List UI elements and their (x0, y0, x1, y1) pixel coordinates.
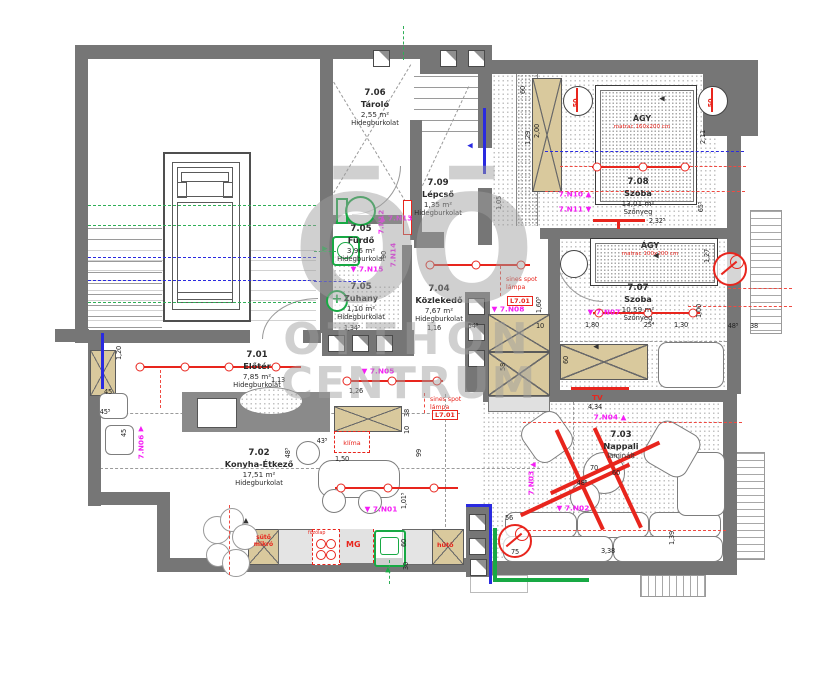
dimension-label: 25⁴ (644, 321, 654, 329)
bed-title: ÁGY (597, 114, 687, 124)
room-floor: Hidegburkolat (406, 315, 472, 324)
dimension-label: 10 (536, 322, 544, 330)
track-light-line1: sines spot (430, 396, 461, 404)
dimension-label: 43⁵ (317, 437, 327, 445)
room-id: 7.05 (328, 282, 394, 293)
electric-line (592, 166, 690, 168)
dimension-label: 4,34 (588, 403, 602, 411)
window-icon (470, 559, 487, 576)
bed-subtitle: matrac 160x200 cm (597, 124, 687, 131)
window-icon (469, 538, 486, 555)
dimension-label: 1,16 (427, 324, 441, 332)
junction-icon (433, 377, 442, 386)
annotation-label: ▼ 7.N02 (557, 504, 590, 513)
room-floor: Hidegburkolat (220, 479, 298, 488)
window-marking-blue (101, 333, 104, 389)
dimension-label: 60 (400, 539, 408, 547)
window-marking-blue (483, 108, 486, 174)
track-light-label-1: sines spot lámpa (506, 276, 537, 292)
room-name: Tároló (340, 99, 410, 110)
burner-icon (316, 539, 326, 549)
wardrobe-box (560, 344, 648, 380)
klima-label: klíma (343, 439, 360, 447)
window-icon (468, 350, 485, 367)
dimension-label: 2,11 (699, 130, 707, 144)
room-id: 7.04 (406, 284, 472, 295)
electric-line (343, 380, 443, 382)
window-icon (440, 50, 457, 67)
service-line-blue (88, 257, 316, 258)
shelf (488, 396, 550, 412)
wall-segment (55, 329, 89, 342)
track-light-line2: lámpa (506, 284, 537, 292)
window-icon (468, 50, 485, 67)
junction-icon (337, 484, 346, 493)
annotation-label: ▲ 7.N13 (380, 214, 413, 223)
window-icon (328, 335, 345, 352)
dimension-label: 60 (612, 469, 620, 477)
service-line-blue (88, 280, 316, 281)
room-floor: Hidegburkolat (405, 209, 471, 218)
electric-line (426, 264, 530, 266)
window-icon (352, 335, 369, 352)
window-marking-blue (466, 504, 492, 507)
room-floor: Hidegburkolat (340, 119, 410, 128)
junction-icon (384, 484, 393, 493)
dimension-label: 50 (572, 99, 580, 108)
room-id: 7.09 (405, 178, 471, 189)
dimension-label: 30 (402, 562, 410, 570)
annotation-label: ▼ 7.N15 (351, 265, 384, 274)
room-area: 2,55 m² (340, 110, 410, 119)
room-name: Lépcső (405, 189, 471, 200)
room-floor: Hidegburkolat (328, 313, 394, 322)
electric-line-dashed (728, 288, 792, 289)
annotation-label: 7.N04 ▲ (594, 413, 627, 422)
bed-subtitle: matrac 100x200 cm (600, 251, 700, 258)
service-line-green (88, 225, 316, 226)
service-line-green (88, 205, 316, 206)
room-label-lepcso: 7.09 Lépcső 1,35 m² Hidegburkolat (405, 178, 471, 218)
room-name: Nappali (583, 441, 659, 452)
bed-title: ÁGY (600, 241, 700, 251)
room-label-szoba-nagy: 7.08 Szoba 13,01 m² Szőnyeg (603, 177, 673, 217)
annotation-label: ▼ 7.N07 (588, 308, 621, 317)
elevator-bracket (177, 182, 187, 198)
electric-line-dashed (523, 530, 726, 531)
arrow-icon: ▲ (243, 518, 248, 525)
room-area: 1,35 m² (405, 200, 471, 209)
klima-box: klíma (334, 431, 370, 453)
dimension-label: 60 (519, 86, 527, 94)
tv-wall-mark (571, 387, 629, 390)
window-icon (376, 335, 393, 352)
dimension-label: 3,38 (601, 547, 615, 555)
junction-icon (181, 363, 190, 372)
elevator-bracket (223, 182, 233, 198)
dimension-label: 70 (590, 464, 598, 472)
wall-marking-green (493, 578, 589, 582)
service-line-green (88, 302, 316, 303)
window-marking-blue (489, 504, 492, 584)
dimension-label: 1,30 (674, 321, 688, 329)
fridge-label: hűtő (437, 541, 454, 549)
room-label-nappali: 7.03 Nappali laminált (583, 430, 659, 461)
room-name: Szoba (603, 294, 673, 305)
dimension-label: 1,80 (585, 321, 599, 329)
dimension-label: 1,50 (335, 455, 349, 463)
dimension-label: 48⁵ (728, 322, 738, 330)
junction-icon (343, 377, 352, 386)
dimension-label: 1,34⁵ (344, 324, 360, 332)
dimension-label: 75 (511, 548, 519, 556)
wall-segment (303, 330, 321, 343)
annotation-label: 7.N11 ▼ (559, 205, 592, 214)
room-id: 7.06 (340, 88, 410, 99)
annotation-label: ▼ 7.N01 (365, 505, 398, 514)
electric-line-dashed (160, 370, 161, 408)
room-area: 1,10 m² (328, 304, 394, 313)
dimension-label: 56 (505, 514, 513, 522)
wall-segment (75, 45, 337, 59)
exterior-stair-lower (735, 452, 765, 560)
toilet-icon (345, 196, 376, 226)
track-light-code-2: L7.01 (432, 410, 458, 420)
room-id: 7.01 (222, 350, 292, 361)
electric-line-dashed (523, 422, 742, 423)
junction-icon (639, 163, 648, 172)
wall-segment (88, 330, 250, 343)
annotation-label: 7.N06 (137, 435, 146, 459)
room-label-kozlekedo: 7.04 Közlekedő 7,67 m² Hidegburkolat (406, 284, 472, 324)
window-icon (373, 50, 390, 67)
annotation-label: 7.N03 (527, 471, 536, 495)
dimension-label: 48⁵ (284, 448, 292, 458)
dimension-label: 1,00 (695, 304, 703, 318)
dishwasher-label: MG (346, 540, 361, 549)
junction-icon (426, 261, 435, 270)
wall-segment (75, 45, 88, 343)
burner-icon (326, 539, 336, 549)
dimension-label: 65⁵ (697, 202, 705, 212)
service-line-green (403, 26, 404, 60)
room-area: 17,51 m² (220, 470, 298, 479)
dimension-label: 1,01⁵ (400, 493, 408, 509)
dimension-label: 45 (104, 388, 112, 396)
hall-cabinet (334, 406, 402, 432)
junction-icon (517, 261, 526, 270)
arrow-icon: ◀ (467, 143, 472, 150)
electric-line (335, 487, 458, 489)
room-name: Szoba (603, 188, 673, 199)
low-wall-opening (197, 398, 237, 428)
burner-icon (326, 550, 336, 560)
arrow-icon: ▶ (322, 246, 327, 253)
burner-icon (316, 550, 326, 560)
arrow-icon: ▲ (385, 567, 390, 574)
arrow-icon: ◀ (653, 253, 658, 260)
dimension-label: 1,20 (115, 346, 123, 360)
tv-label: TV (592, 393, 603, 402)
dimension-label: 1,27 (703, 249, 711, 263)
room-label-zuhany: 7.05 Zuhany 1,10 m² Hidegburkolat (328, 282, 394, 322)
wall-segment (414, 232, 444, 248)
dimension-label: 38 (403, 409, 411, 417)
floor-plan: + (0, 0, 836, 686)
room-floor: Szőnyeg (603, 208, 673, 217)
dimension-label: 1,29 (524, 131, 532, 145)
kitchen-counter (402, 529, 434, 565)
room-id: 7.03 (583, 430, 659, 441)
annotation-label: ▼ 7.N08 (492, 305, 525, 314)
annotation-label: ▼ 7.N05 (362, 367, 395, 376)
oven-label-line1: sütő (249, 534, 278, 541)
dimension-label: 2,32⁵ (649, 217, 665, 225)
dimension-label: 1,26 (349, 387, 363, 395)
elevator-car (177, 202, 233, 300)
junction-icon (136, 363, 145, 372)
oven-label: sütő mikró (249, 534, 278, 548)
elevator-shaft (163, 152, 251, 322)
entry-rug (239, 387, 303, 415)
dimension-label: 1,60⁵ (535, 297, 543, 313)
oven-label-line2: mikró (249, 541, 278, 548)
wall-marking-green (493, 528, 497, 582)
room-label-szoba-kicsi: 7.07 Szoba 10,59 m² Szőnyeg (603, 283, 673, 323)
dimension-label: 1,39 (668, 531, 676, 545)
tv-mark (617, 222, 620, 229)
wardrobe-box (488, 314, 550, 352)
ventilation-fan-icon (713, 252, 747, 286)
electric-line-dashed (500, 266, 501, 296)
dimension-label: 1,13 (271, 376, 285, 384)
room-name: Közlekedő (406, 295, 472, 306)
electric-line-dashed (424, 393, 425, 413)
wall-segment (470, 561, 737, 575)
dimension-label: 38 (750, 322, 758, 330)
desk (658, 342, 724, 388)
room-floor: laminált (583, 452, 659, 461)
dimension-label: 54⁵ (468, 322, 478, 330)
room-area: 7,67 m² (406, 306, 472, 315)
electric-line-dashed (229, 505, 230, 575)
junction-icon (681, 163, 690, 172)
room-id: 7.08 (603, 177, 673, 188)
electric-line-dashed (688, 306, 792, 307)
room-name: Előtér (222, 361, 292, 372)
arrow-icon: ◀ (593, 344, 598, 351)
dimension-label: 10 (403, 426, 411, 434)
dining-chair (322, 489, 346, 513)
service-line-blue (545, 151, 744, 152)
room-label-eloter: 7.01 Előtér 7,85 m² Hidegburkolat (222, 350, 292, 390)
dimension-label: 60 (562, 356, 570, 364)
room-name: Konyha-Étkező (220, 459, 298, 470)
room-id: 7.07 (603, 283, 673, 294)
annotation-label: 7.N14 (389, 243, 398, 267)
wall-segment (478, 188, 492, 245)
dimension-label: 50 (707, 99, 715, 108)
arrow-icon: ▲ (138, 426, 143, 433)
bedside-table (560, 250, 588, 278)
room-area: 13,01 m² (603, 199, 673, 208)
dimension-label: 90 (380, 251, 388, 259)
exterior-stair-upper (750, 210, 782, 334)
elevator-machine-bar (181, 172, 229, 182)
bed-label-small: ÁGY matrac 100x200 cm (600, 241, 700, 259)
junction-icon (388, 377, 397, 386)
annotation-label: 7.N10 ▲ (559, 190, 592, 199)
window-icon (469, 514, 486, 531)
wardrobe-box (488, 352, 550, 396)
room-name: Zuhany (328, 293, 394, 304)
arrow-icon: ◀ (530, 462, 535, 469)
bed-label-large: ÁGY matrac 160x200 cm (597, 114, 687, 132)
plant (222, 549, 250, 577)
dimension-label: 45⁵ (100, 408, 110, 416)
dimension-label: 2,00 (533, 124, 541, 138)
junction-icon (593, 163, 602, 172)
electric-line-dashed (690, 166, 746, 167)
dimension-label: 48⁵ (577, 479, 587, 487)
exterior-step (640, 575, 706, 597)
dimension-label: 58 (499, 363, 507, 371)
cooktop-label: főzőlap (308, 531, 325, 536)
junction-icon (430, 484, 439, 493)
track-light-line1: sines spot (506, 276, 537, 284)
wall-segment (723, 390, 737, 575)
room-name: Fürdő (328, 235, 394, 246)
dimension-label: 99 (415, 449, 423, 457)
arrow-icon: ◀ (659, 96, 664, 103)
room-label-tarolo: 7.06 Tároló 2,55 m² Hidegburkolat (340, 88, 410, 128)
electric-line-dashed (560, 166, 592, 167)
junction-icon (472, 261, 481, 270)
dimension-label: 45 (120, 429, 128, 437)
dimension-label: 1,05 (495, 196, 503, 210)
